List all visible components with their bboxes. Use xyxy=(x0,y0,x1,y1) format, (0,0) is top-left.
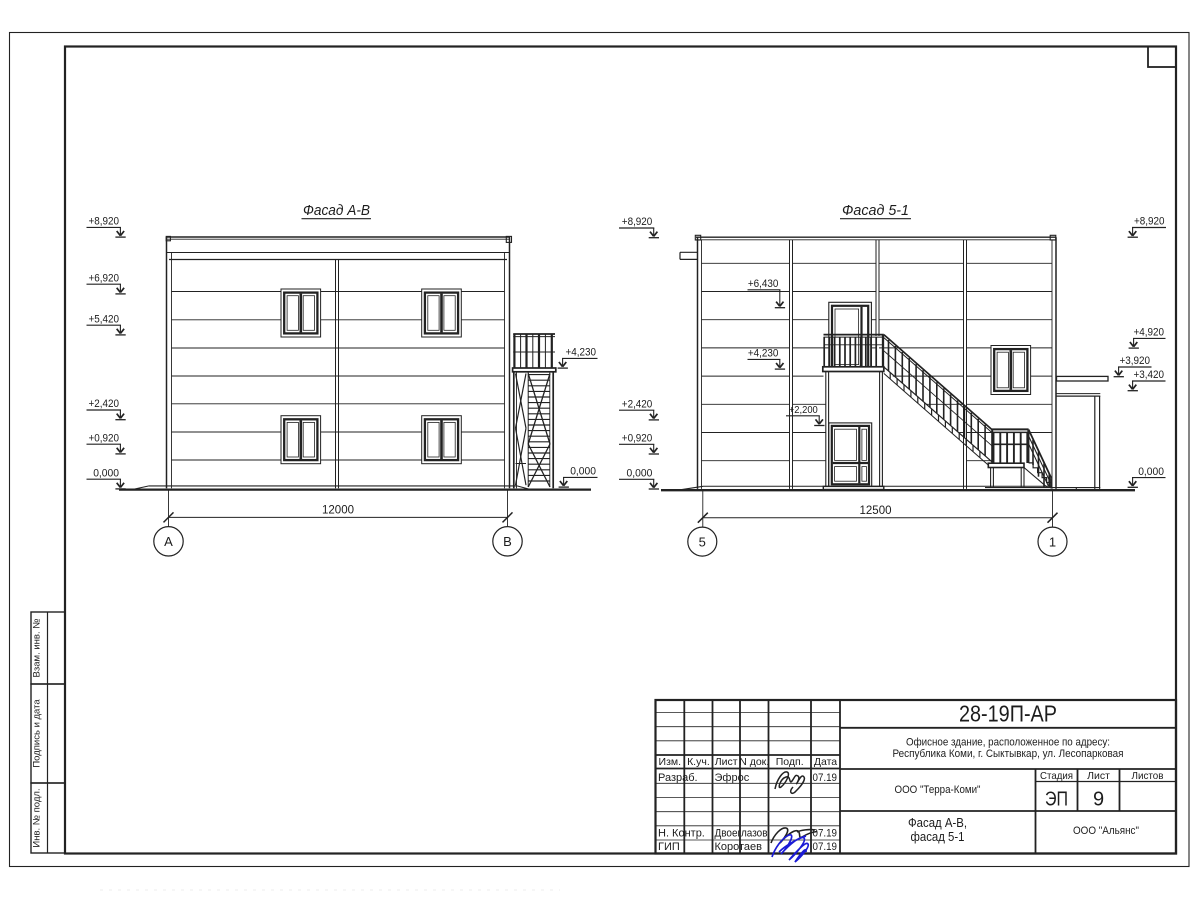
svg-text:+5,420: +5,420 xyxy=(89,313,120,325)
svg-text:Подпись и дата: Подпись и дата xyxy=(32,699,43,768)
svg-text:В: В xyxy=(503,534,512,549)
svg-text:Офисное здание, расположенное: Офисное здание, расположенное по адресу: xyxy=(906,736,1110,748)
svg-text:07.19: 07.19 xyxy=(813,772,838,784)
svg-text:+3,420: +3,420 xyxy=(1134,369,1165,381)
svg-text:Стадия: Стадия xyxy=(1040,770,1073,782)
svg-text:ГИП: ГИП xyxy=(658,841,680,853)
svg-text:Взам. инв. №: Взам. инв. № xyxy=(32,619,43,678)
svg-text:+0,920: +0,920 xyxy=(89,432,120,444)
svg-text:ЭП: ЭП xyxy=(1045,789,1068,811)
svg-text:фасад 5-1: фасад 5-1 xyxy=(911,830,965,844)
svg-text:9: 9 xyxy=(1093,789,1104,811)
svg-text:07.19: 07.19 xyxy=(813,841,838,853)
svg-text:5: 5 xyxy=(699,534,706,549)
svg-text:+8,920: +8,920 xyxy=(622,216,653,228)
svg-text:Коротаев: Коротаев xyxy=(715,841,763,853)
svg-text:Эфрос: Эфрос xyxy=(715,772,750,784)
svg-text:Разраб.: Разраб. xyxy=(658,772,698,784)
svg-text:1: 1 xyxy=(1049,534,1056,549)
svg-text:28-19П-АР: 28-19П-АР xyxy=(959,701,1057,727)
svg-text:0,000: 0,000 xyxy=(1138,466,1164,478)
svg-text:Подп.: Подп. xyxy=(776,756,804,768)
svg-text:+2,200: +2,200 xyxy=(789,404,818,416)
svg-text:12500: 12500 xyxy=(860,505,892,517)
svg-text:0,000: 0,000 xyxy=(93,467,119,479)
svg-text:Изм.: Изм. xyxy=(659,756,682,768)
svg-text:Фасад А-В: Фасад А-В xyxy=(303,203,370,219)
svg-text:N док.: N док. xyxy=(739,756,769,768)
svg-text:0,000: 0,000 xyxy=(570,466,596,478)
svg-text:Фасад 5-1: Фасад 5-1 xyxy=(842,203,909,219)
svg-text:+2,420: +2,420 xyxy=(622,398,653,410)
svg-text:+6,430: +6,430 xyxy=(748,278,779,290)
svg-text:+2,420: +2,420 xyxy=(89,398,120,410)
svg-text:Фасад А-В,: Фасад А-В, xyxy=(908,816,967,830)
svg-text:+0,920: +0,920 xyxy=(622,433,653,445)
svg-text:+3,920: +3,920 xyxy=(1120,355,1151,367)
svg-text:Лист: Лист xyxy=(715,756,738,768)
svg-text:+4,230: +4,230 xyxy=(566,347,597,359)
svg-text:+4,920: +4,920 xyxy=(1134,327,1165,339)
svg-text:К.уч.: К.уч. xyxy=(687,756,710,768)
svg-text:ООО "Альянс": ООО "Альянс" xyxy=(1073,825,1139,837)
svg-text:+4,230: +4,230 xyxy=(748,348,779,360)
svg-text:+8,920: +8,920 xyxy=(1134,216,1165,228)
svg-text:Инв. № подл.: Инв. № подл. xyxy=(32,788,43,847)
svg-text:Двоеглазов: Двоеглазов xyxy=(715,827,768,839)
svg-text:А: А xyxy=(164,534,173,549)
svg-text:07.19: 07.19 xyxy=(813,827,838,839)
svg-text:Дата: Дата xyxy=(814,756,837,768)
svg-text:Н. Контр.: Н. Контр. xyxy=(658,827,705,839)
svg-text:Листов: Листов xyxy=(1132,770,1164,782)
svg-text:+8,920: +8,920 xyxy=(89,216,120,228)
svg-text:Республика Коми, г. Сыктывкар,: Республика Коми, г. Сыктывкар, ул. Лесоп… xyxy=(893,748,1124,760)
svg-text:+6,920: +6,920 xyxy=(89,272,120,284)
svg-text:0,000: 0,000 xyxy=(627,468,653,480)
svg-text:12000: 12000 xyxy=(322,505,354,517)
svg-text:ООО "Терра-Коми": ООО "Терра-Коми" xyxy=(895,784,981,796)
svg-text:Лист: Лист xyxy=(1087,770,1110,782)
